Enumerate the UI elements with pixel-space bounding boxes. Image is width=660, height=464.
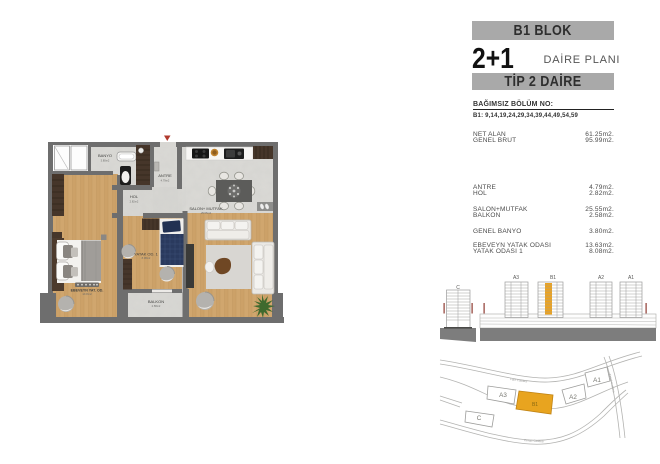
svg-text:EBEVEYN YAT. OD.: EBEVEYN YAT. OD.: [71, 289, 104, 293]
svg-text:A2: A2: [569, 394, 577, 401]
svg-text:BANYO: BANYO: [98, 153, 112, 158]
svg-text:C: C: [477, 415, 482, 422]
svg-text:3.80m2: 3.80m2: [101, 159, 110, 163]
svg-text:Fatih Caddesi: Fatih Caddesi: [510, 377, 528, 383]
svg-text:A1: A1: [593, 377, 601, 384]
svg-text:Cengiz Caddesi: Cengiz Caddesi: [524, 438, 544, 443]
svg-text:HOL: HOL: [130, 194, 139, 199]
svg-text:2.58m2: 2.58m2: [152, 304, 161, 308]
svg-text:YATAK OD. 1: YATAK OD. 1: [134, 252, 159, 257]
svg-text:B1: B1: [550, 275, 556, 281]
svg-text:B1: B1: [532, 402, 538, 408]
svg-text:4.79m2: 4.79m2: [161, 179, 170, 183]
svg-text:2.82m2: 2.82m2: [130, 200, 139, 204]
svg-text:A1: A1: [628, 275, 634, 281]
svg-text:SALON+ MUTFAK: SALON+ MUTFAK: [189, 206, 223, 211]
svg-text:13.63m2: 13.63m2: [82, 293, 92, 296]
svg-text:25.55m2: 25.55m2: [201, 211, 212, 215]
svg-text:8.08m2: 8.08m2: [142, 256, 151, 260]
svg-text:A3: A3: [499, 392, 507, 399]
svg-text:BALKON: BALKON: [148, 299, 164, 304]
svg-text:ANTRE: ANTRE: [158, 173, 172, 178]
svg-text:A3: A3: [513, 275, 519, 281]
svg-text:A2: A2: [598, 275, 604, 281]
